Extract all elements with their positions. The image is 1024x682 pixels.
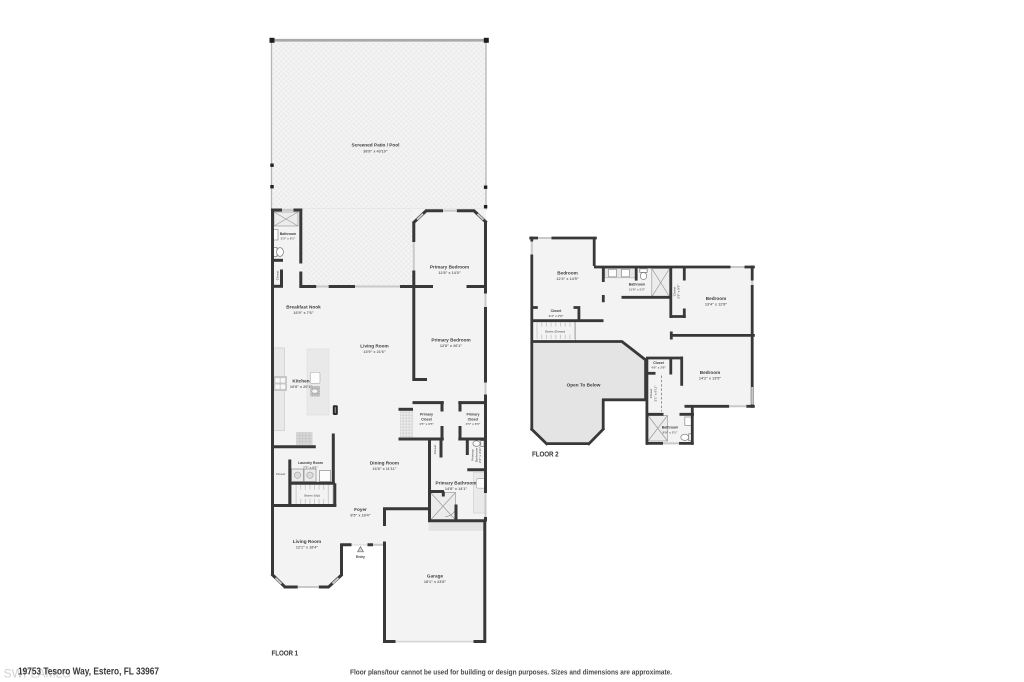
svg-text:Living Room: Living Room bbox=[360, 344, 388, 349]
svg-text:38'8" x 43'10": 38'8" x 43'10" bbox=[363, 150, 388, 154]
svg-text:Entry: Entry bbox=[356, 555, 365, 559]
svg-text:8'5" x 18'4": 8'5" x 18'4" bbox=[350, 514, 370, 518]
svg-text:10'8" x 20'1": 10'8" x 20'1" bbox=[290, 385, 312, 389]
svg-text:Closet: Closet bbox=[421, 417, 433, 421]
svg-text:Laundry Room: Laundry Room bbox=[298, 461, 323, 465]
svg-text:16'9" x 7'6": 16'9" x 7'6" bbox=[293, 311, 313, 315]
svg-text:Bathroom: Bathroom bbox=[662, 426, 679, 430]
svg-text:Screened Patio / Pool: Screened Patio / Pool bbox=[352, 143, 400, 148]
svg-text:7'7" x 6'5": 7'7" x 6'5" bbox=[303, 466, 318, 470]
svg-text:Open To Below: Open To Below bbox=[567, 383, 601, 388]
svg-text:Living Room: Living Room bbox=[293, 539, 321, 544]
svg-text:Breakfast Nook: Breakfast Nook bbox=[286, 305, 321, 310]
svg-text:Primary Bedroom: Primary Bedroom bbox=[431, 338, 470, 343]
svg-text:13'9" x 21'6": 13'9" x 21'6" bbox=[363, 350, 385, 354]
svg-text:4'9" x 2'8": 4'9" x 2'8" bbox=[651, 366, 666, 370]
svg-text:8'9" x 5'1": 8'9" x 5'1" bbox=[663, 430, 678, 434]
svg-text:Closet: Closet bbox=[276, 472, 285, 476]
svg-text:Dining Room: Dining Room bbox=[370, 461, 399, 466]
svg-text:Closet: Closet bbox=[468, 417, 480, 421]
svg-text:Closet: Closet bbox=[653, 361, 665, 365]
svg-text:Floor plans/tour cannot be use: Floor plans/tour cannot be used for buil… bbox=[350, 669, 672, 676]
svg-text:Foyer: Foyer bbox=[354, 507, 367, 512]
svg-text:Kitchen: Kitchen bbox=[292, 379, 309, 384]
svg-text:Bathroom: Bathroom bbox=[280, 232, 297, 236]
svg-text:Primary Bedroom: Primary Bedroom bbox=[430, 265, 469, 270]
svg-text:Primary: Primary bbox=[466, 413, 479, 417]
svg-text:Closet: Closet bbox=[551, 309, 563, 313]
svg-text:Stairs (Up): Stairs (Up) bbox=[304, 493, 320, 497]
svg-text:Closet: Closet bbox=[433, 445, 437, 454]
svg-text:Closet: Closet bbox=[276, 271, 280, 280]
svg-text:19753 Tesoro Way, Estero, FL 3: 19753 Tesoro Way, Estero, FL 33967 bbox=[18, 667, 159, 678]
svg-text:5'2" x 9'1": 5'2" x 9'1" bbox=[281, 237, 296, 241]
svg-text:13'4" x 12'8": 13'4" x 12'8" bbox=[705, 303, 727, 307]
svg-text:14'8" x 14'1": 14'8" x 14'1" bbox=[445, 487, 467, 491]
svg-text:Stairs (Down): Stairs (Down) bbox=[545, 330, 565, 334]
svg-text:2'1" x 6'11": 2'1" x 6'11" bbox=[653, 385, 657, 402]
svg-text:2'2" x 4'11": 2'2" x 4'11" bbox=[478, 446, 482, 463]
svg-text:9'4" x 2'8": 9'4" x 2'8" bbox=[549, 314, 564, 318]
svg-text:12'8" x 26'1": 12'8" x 26'1" bbox=[440, 344, 462, 348]
svg-text:12'1" x 18'4": 12'1" x 18'4" bbox=[296, 546, 318, 550]
svg-text:11'8" x 5'2": 11'8" x 5'2" bbox=[629, 287, 646, 291]
svg-text:14'2" x 13'5": 14'2" x 13'5" bbox=[699, 377, 721, 381]
svg-text:18'1" x 23'8": 18'1" x 23'8" bbox=[424, 580, 446, 584]
svg-text:Garage: Garage bbox=[427, 574, 444, 579]
svg-text:Bedroom: Bedroom bbox=[706, 296, 727, 301]
svg-text:Bedroom: Bedroom bbox=[557, 271, 578, 276]
svg-text:Primary Bathroom: Primary Bathroom bbox=[436, 481, 477, 486]
svg-text:12'4" x 14'5": 12'4" x 14'5" bbox=[556, 277, 578, 281]
svg-text:FLOOR 1: FLOOR 1 bbox=[272, 649, 299, 658]
svg-text:2'5" x 9'5": 2'5" x 9'5" bbox=[677, 284, 681, 299]
svg-text:Bedroom: Bedroom bbox=[700, 370, 721, 375]
svg-text:4'5" x 6'5": 4'5" x 6'5" bbox=[419, 422, 434, 426]
svg-text:Bathroom: Bathroom bbox=[629, 283, 646, 287]
svg-text:4'5" x 6'5": 4'5" x 6'5" bbox=[466, 422, 481, 426]
svg-text:16'8" x 11'11": 16'8" x 11'11" bbox=[373, 467, 397, 471]
svg-text:FLOOR 2: FLOOR 2 bbox=[532, 450, 559, 459]
svg-text:Primary: Primary bbox=[420, 413, 433, 417]
svg-text:12'8" x 14'3": 12'8" x 14'3" bbox=[438, 271, 460, 275]
